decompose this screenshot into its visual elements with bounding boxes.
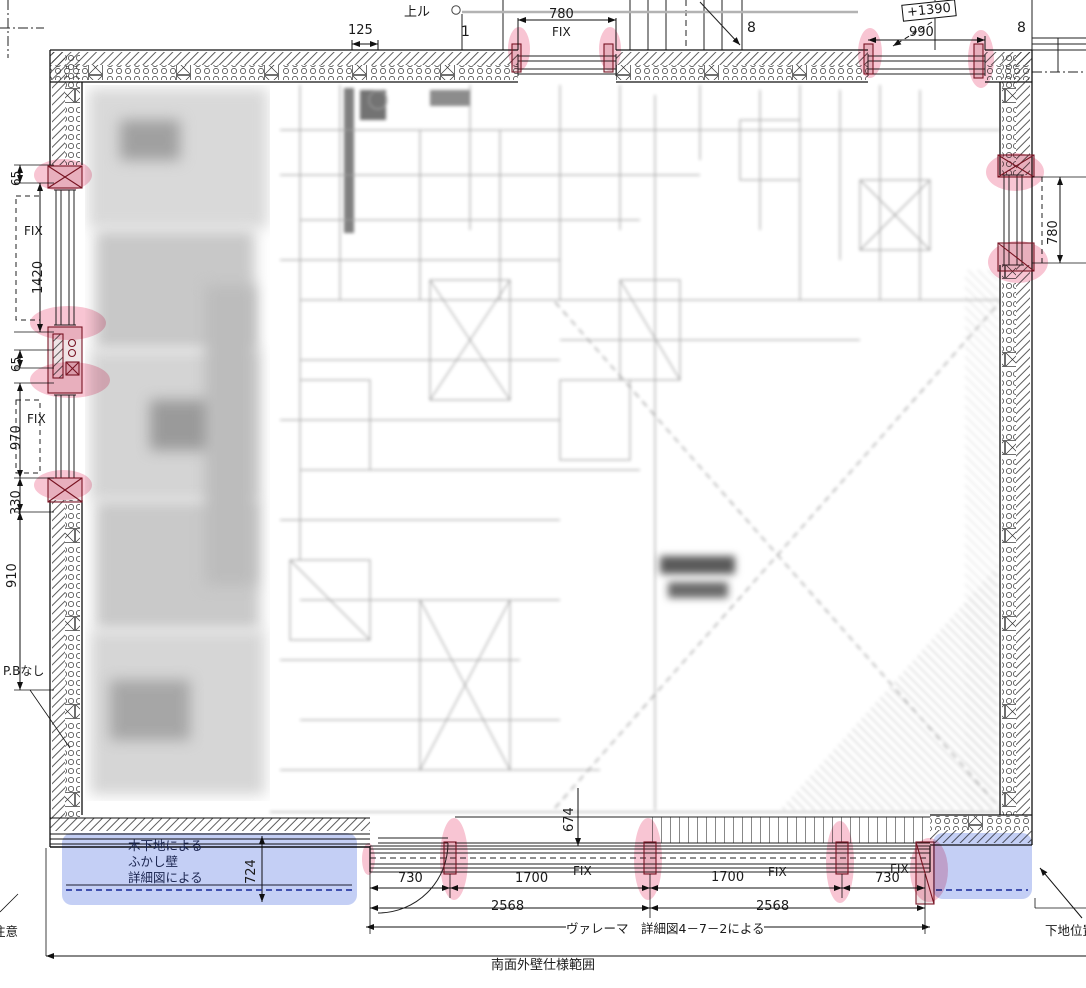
- fix-label-bottom-1: FIX: [573, 865, 592, 877]
- south-wall-extent-note: 南面外壁仕様範囲: [491, 959, 595, 972]
- interior-blurred-content: [270, 85, 1000, 812]
- dim-125: 125: [348, 24, 373, 37]
- highlight-top-window2-left-jamb: [858, 28, 882, 78]
- floorplan-page: 上ル 125 1 780 FIX 8 +1390 990 8 65 1420 F…: [0, 0, 1086, 988]
- dim-65-lower: 65: [10, 357, 22, 372]
- fix-label-left-upper: FIX: [24, 225, 43, 237]
- dim-2568-left: 2568: [491, 900, 524, 913]
- dim-730-left: 730: [398, 872, 423, 885]
- fix-label-top: FIX: [552, 26, 571, 38]
- highlight-right-wall-sill: [988, 241, 1048, 283]
- highlight-top-window-right-jamb: [599, 27, 621, 71]
- highlight-right-wall-head: [986, 153, 1044, 191]
- dim-780-right: 780: [1047, 220, 1060, 245]
- dim-674: 674: [563, 807, 576, 832]
- caution-note: 注意: [0, 926, 18, 939]
- dim-990: 990: [909, 26, 934, 39]
- substrate-note: 下地位置: [1045, 925, 1086, 938]
- grid-label-1: 1: [461, 25, 470, 39]
- fix-label-bottom-2: FIX: [768, 866, 787, 878]
- highlight-top-window2-right-jamb: [968, 30, 994, 88]
- furring-note-line3: 詳細図による: [128, 872, 203, 885]
- dim-65-upper: 65: [10, 171, 22, 186]
- grid-label-8-mid: 8: [747, 21, 756, 35]
- highlight-bottom-mullion-2: [634, 818, 662, 900]
- dim-910: 910: [6, 563, 19, 588]
- dim-2568-right: 2568: [756, 900, 789, 913]
- dim-1420: 1420: [32, 261, 45, 294]
- highlight-left-wall-mullion-top: [30, 306, 106, 340]
- fix-label-left-lower: FIX: [27, 413, 46, 425]
- dim-1700-right: 1700: [711, 871, 744, 884]
- highlight-left-wall-head: [34, 159, 92, 191]
- dim-1700-left: 1700: [515, 872, 548, 885]
- dim-780-top: 780: [549, 8, 574, 21]
- stair-up-label: 上ル: [404, 6, 430, 19]
- pb-note: P.Bなし: [3, 665, 44, 677]
- blurred-room-label: [652, 548, 747, 618]
- blurred-region-left: [85, 85, 270, 801]
- grid-label-8-right: 8: [1017, 21, 1026, 35]
- highlight-left-wall-mullion-bottom: [30, 362, 110, 398]
- dim-330: 330: [10, 490, 23, 515]
- highlight-bottom-mullion-1: [440, 818, 468, 900]
- highlight-furring-wall-left: [62, 833, 357, 905]
- highlight-bottom-left-jamb: [362, 843, 375, 875]
- fix-label-bottom-3: FIX: [890, 863, 909, 875]
- furring-note-line1: 木下地による: [128, 840, 203, 853]
- highlight-top-window-left-jamb: [508, 27, 530, 71]
- furring-note-line2: ふかし壁: [128, 856, 178, 869]
- dim-724: 724: [245, 859, 258, 884]
- highlight-bottom-mullion-3: [826, 821, 854, 903]
- highlight-left-wall-sill: [34, 470, 92, 500]
- highlight-furring-wall-right: [933, 833, 1032, 899]
- valerma-note: ヴァレーマ 詳細図4－7－2による: [566, 923, 764, 936]
- dim-970: 970: [10, 425, 23, 450]
